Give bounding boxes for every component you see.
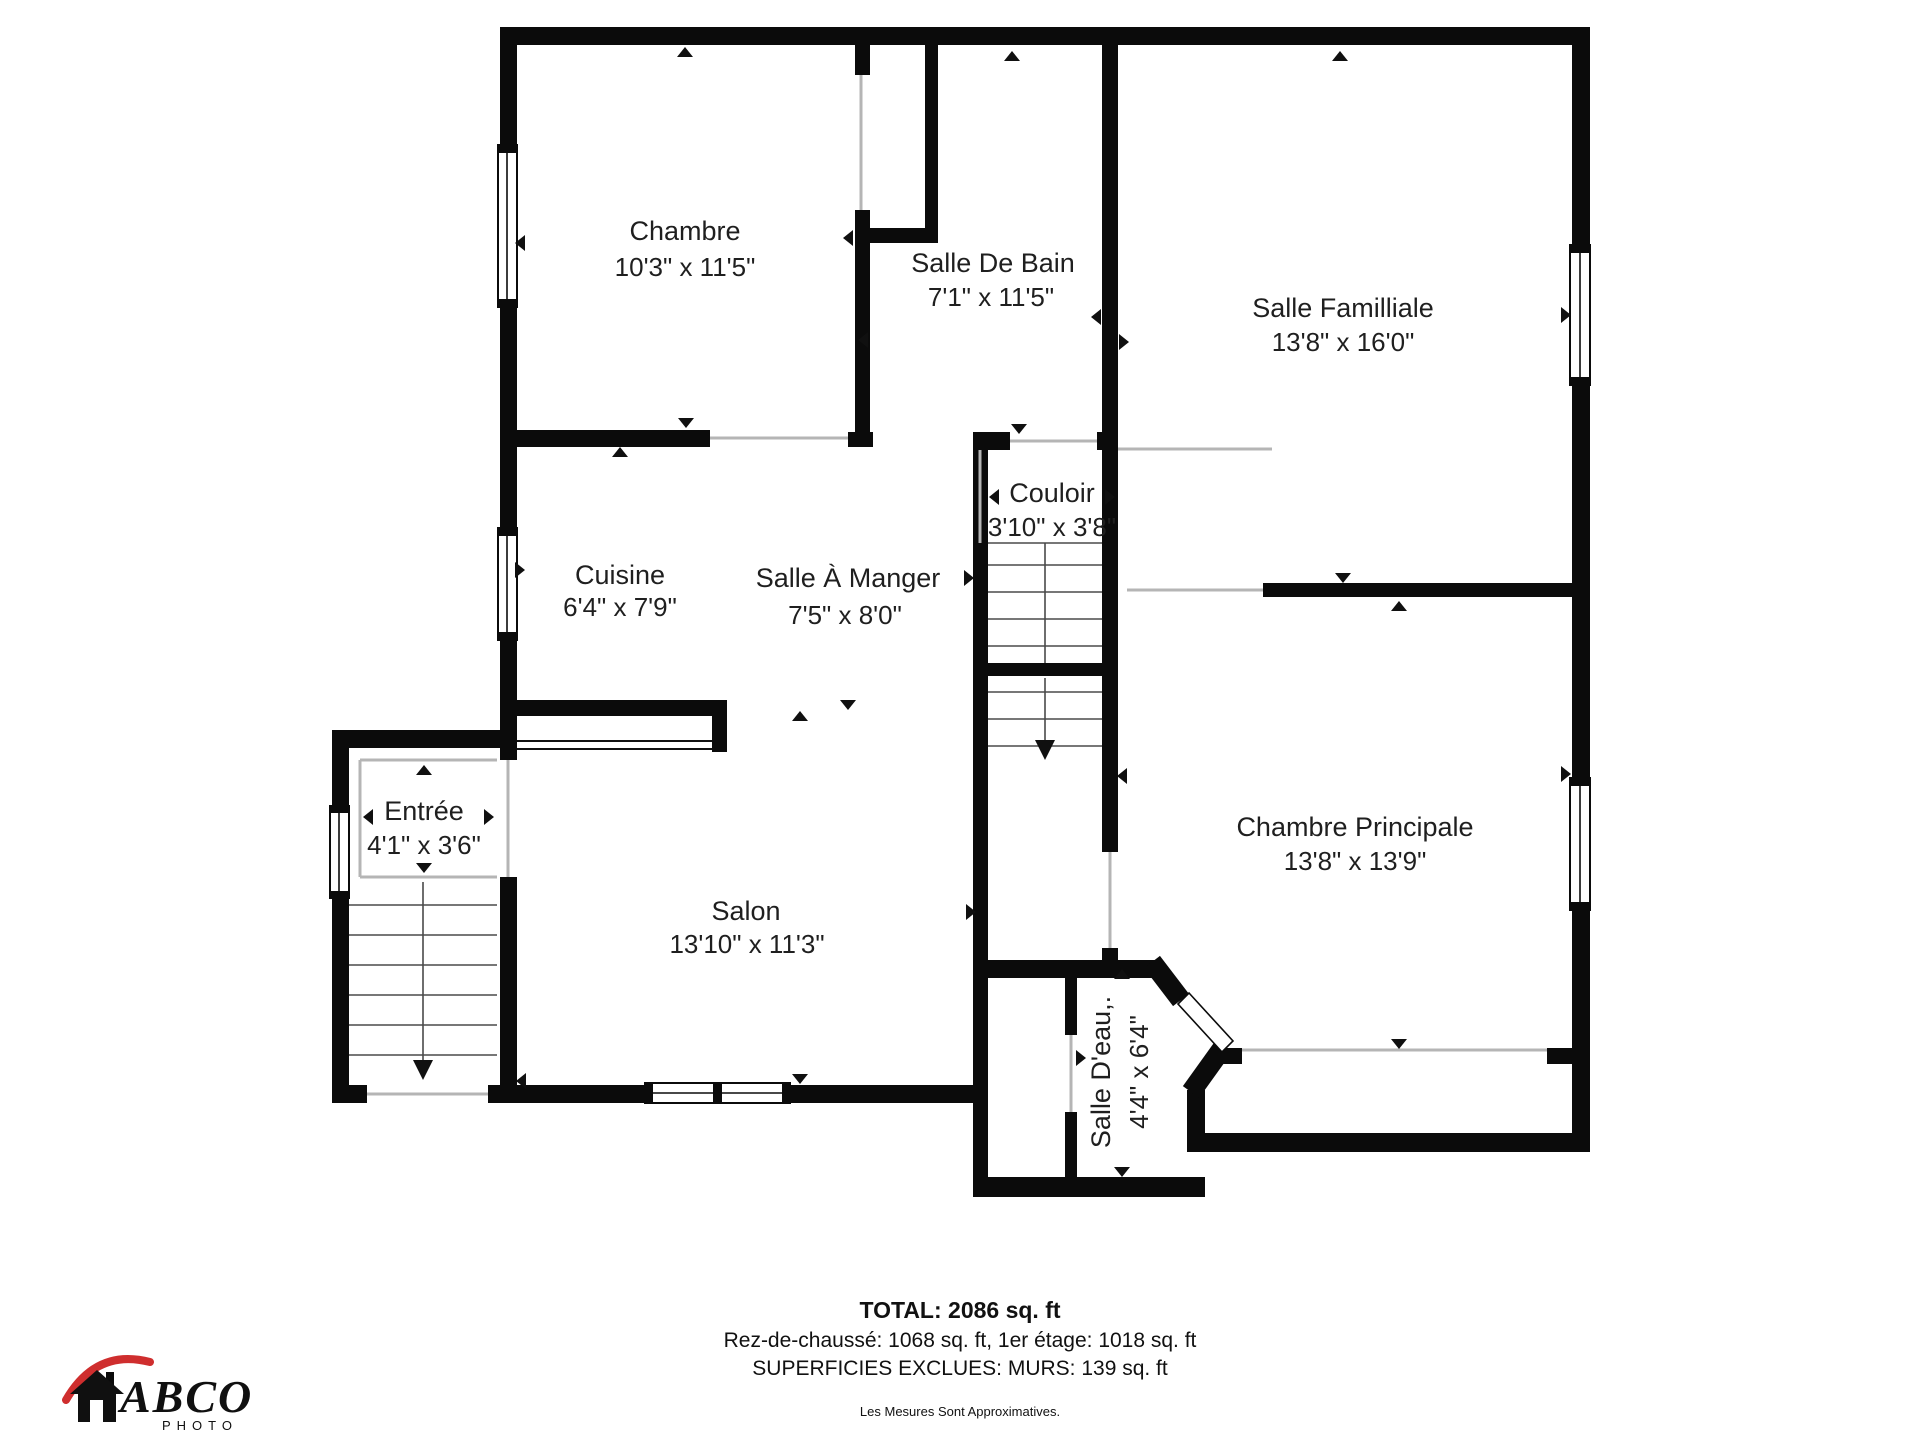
salle-deau-door: [1178, 993, 1233, 1052]
window-entree: [330, 806, 349, 898]
logo-brand-text: ABCO: [117, 1371, 253, 1422]
label-salle-familliale: Salle Familliale: [1252, 293, 1434, 323]
footer-floors: Rez-de-chaussé: 1068 sq. ft, 1er étage: …: [724, 1329, 1197, 1352]
label-salon: Salon: [711, 896, 780, 926]
window-salon: [645, 1083, 790, 1103]
label-salle-deau: Salle D'eau,.: [1086, 996, 1116, 1148]
exterior-walls: [332, 27, 1590, 1197]
footer: TOTAL: 2086 sq. ft Rez-de-chaussé: 1068 …: [724, 1297, 1197, 1419]
window-chambre: [498, 145, 517, 307]
label-chambre: Chambre: [629, 216, 740, 246]
floor-plan-drawing: Chambre 10'3" x 11'5" Salle De Bain 7'1"…: [0, 0, 1920, 1439]
dims-couloir: 3'10" x 3'8": [988, 512, 1116, 542]
dims-chambre-principale: 13'8" x 13'9": [1284, 846, 1427, 876]
entry-staircase: [349, 882, 497, 1080]
dims-salle-deau: 4'4" x 6'4": [1124, 1015, 1154, 1129]
label-entree: Entrée: [384, 796, 464, 826]
footer-excluded: SUPERFICIES EXCLUES: MURS: 139 sq. ft: [752, 1357, 1168, 1380]
floor-plan-page: Chambre 10'3" x 11'5" Salle De Bain 7'1"…: [0, 0, 1920, 1439]
label-cuisine: Cuisine: [575, 560, 665, 590]
label-salle-de-bain: Salle De Bain: [911, 248, 1075, 278]
window-chambre-principale: [1570, 778, 1590, 910]
central-staircase: [988, 543, 1102, 760]
dims-chambre: 10'3" x 11'5": [615, 252, 756, 282]
salon-closet-front: [517, 741, 712, 749]
window-salle-familliale: [1570, 245, 1590, 385]
label-couloir: Couloir: [1009, 478, 1095, 508]
dims-salle-a-manger: 7'5" x 8'0": [788, 600, 902, 630]
abco-photo-logo: ABCO PHOTO: [66, 1359, 253, 1433]
direction-markers: [363, 47, 1571, 1177]
footer-total: TOTAL: 2086 sq. ft: [859, 1297, 1060, 1323]
dims-entree: 4'1" x 3'6": [367, 830, 481, 860]
dims-cuisine: 6'4" x 7'9": [563, 592, 677, 622]
dims-salon: 13'10" x 11'3": [669, 929, 824, 959]
label-chambre-principale: Chambre Principale: [1236, 812, 1473, 842]
window-cuisine: [498, 528, 517, 640]
label-salle-a-manger: Salle À Manger: [756, 563, 941, 593]
footer-disclaimer: Les Mesures Sont Approximatives.: [860, 1404, 1060, 1419]
room-labels: Chambre 10'3" x 11'5" Salle De Bain 7'1"…: [367, 216, 1473, 1148]
dims-salle-familliale: 13'8" x 16'0": [1272, 327, 1415, 357]
logo-sub-text: PHOTO: [162, 1418, 238, 1433]
dims-salle-de-bain: 7'1" x 11'5": [928, 282, 1054, 312]
